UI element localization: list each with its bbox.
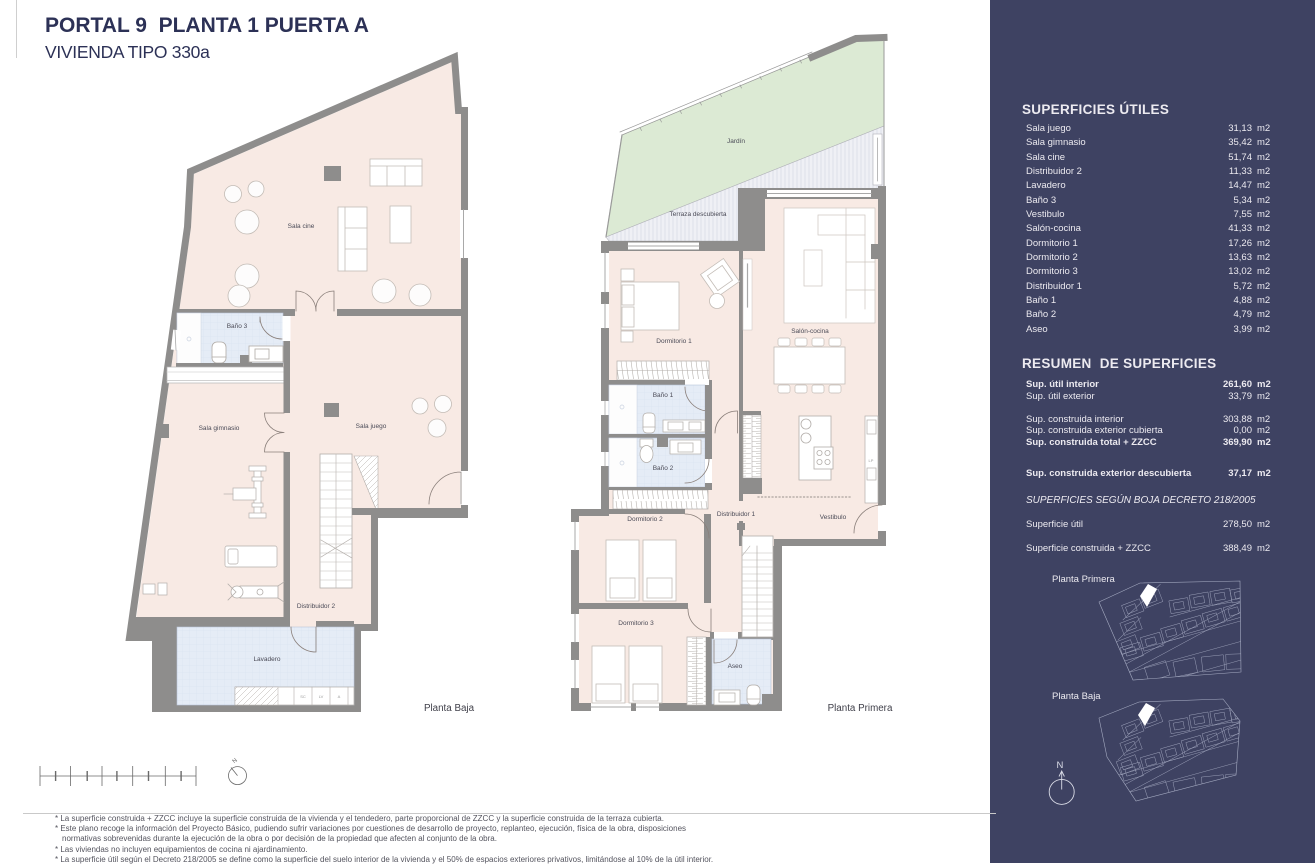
svg-text:Sala gimnasio: Sala gimnasio (199, 425, 240, 432)
svg-text:Distribuidor 2: Distribuidor 2 (297, 603, 336, 610)
svg-text:A: A (338, 694, 341, 699)
svg-text:Distribuidor 1: Distribuidor 1 (717, 511, 756, 518)
svg-text:Dormitorio 1: Dormitorio 1 (656, 338, 692, 345)
svg-text:Baño 2: Baño 2 (653, 465, 674, 472)
svg-text:Dormitorio 3: Dormitorio 3 (618, 620, 654, 627)
svg-text:Dormitorio 2: Dormitorio 2 (627, 516, 663, 523)
svg-text:Sala juego: Sala juego (356, 423, 387, 430)
svg-text:Planta Primera: Planta Primera (828, 703, 893, 714)
svg-text:LP: LP (869, 458, 874, 463)
svg-text:Aseo: Aseo (728, 663, 743, 670)
svg-text:Lavadero: Lavadero (253, 656, 280, 663)
svg-text:Jardín: Jardín (727, 138, 745, 145)
svg-text:N: N (1057, 760, 1064, 771)
svg-text:LV: LV (319, 694, 324, 699)
svg-text:N: N (232, 758, 239, 765)
svg-text:SC: SC (300, 694, 306, 699)
svg-text:Baño 1: Baño 1 (653, 392, 674, 399)
svg-text:Sala cine: Sala cine (288, 223, 315, 230)
svg-text:Terraza descubierta: Terraza descubierta (669, 211, 726, 218)
svg-text:Salón-cocina: Salón-cocina (791, 328, 829, 335)
svg-text:Vestibulo: Vestibulo (820, 514, 847, 521)
svg-text:Planta Baja: Planta Baja (424, 703, 475, 714)
svg-text:Baño 3: Baño 3 (227, 323, 248, 330)
